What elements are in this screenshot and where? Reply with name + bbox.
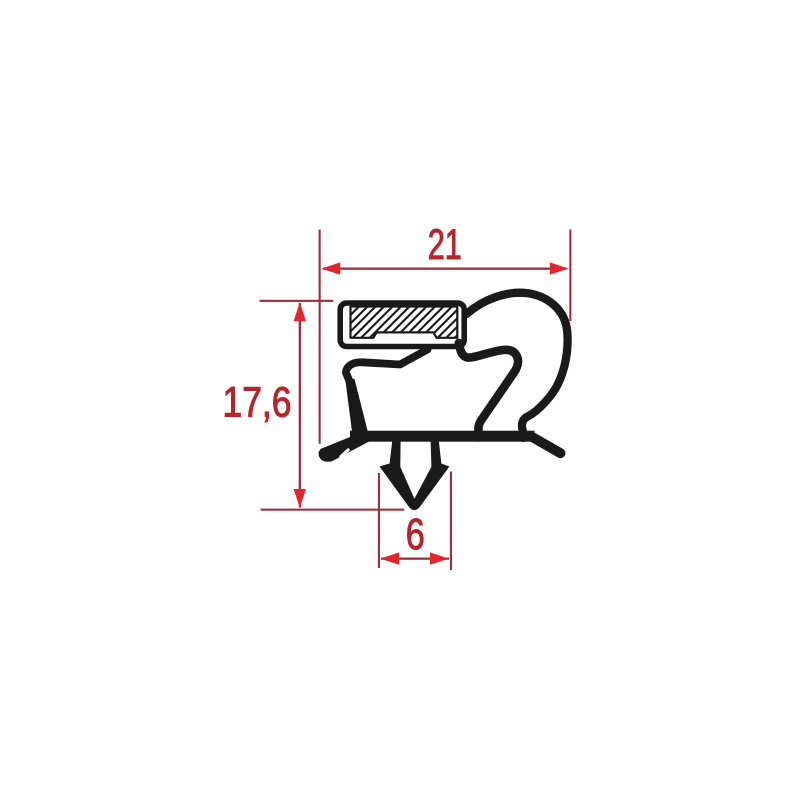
- svg-text:17,6: 17,6: [223, 380, 292, 427]
- svg-text:6: 6: [406, 510, 425, 559]
- svg-text:21: 21: [428, 222, 462, 269]
